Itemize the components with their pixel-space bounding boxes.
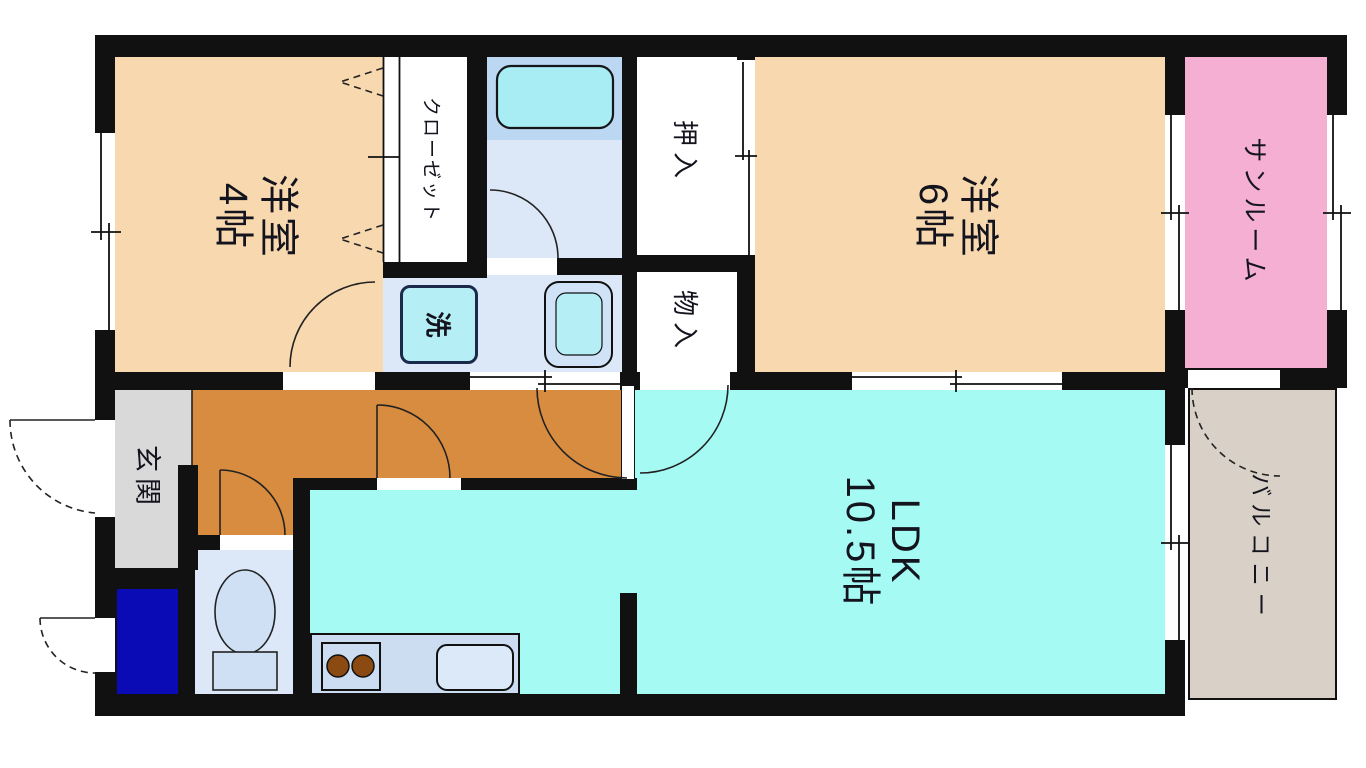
label-balcony: バルコニー xyxy=(1243,438,1283,658)
window-symbol-ldk-balcony xyxy=(1161,445,1189,640)
sliding-symbol-washroom xyxy=(470,370,620,392)
stove-burner-left xyxy=(327,655,349,677)
vanity-sink-basin xyxy=(556,293,602,355)
kitchen-sink xyxy=(437,645,513,690)
label-monoire: 物入 xyxy=(667,212,707,432)
toilet-bowl xyxy=(215,570,275,654)
label-genkan: 玄関 xyxy=(130,408,170,548)
sliding-symbol-oshiire xyxy=(735,62,757,255)
window-symbol-sunroom-left xyxy=(1161,115,1189,310)
door-arc-storage xyxy=(40,618,95,673)
door-arc-hall-ldk xyxy=(537,388,627,478)
door-arc-entrance xyxy=(10,420,95,513)
door-arc-bathroom xyxy=(490,190,558,258)
label-sunroom: サンルーム xyxy=(1236,102,1276,322)
closet-fold-chevron-top xyxy=(340,68,383,96)
door-arc-toilet xyxy=(220,470,285,535)
label-ldk: LDK10.5帖 xyxy=(822,427,942,657)
floor-plan: 洗 xyxy=(0,0,1366,768)
closet-door-lines xyxy=(368,57,400,262)
window-symbol-western4 xyxy=(91,133,121,330)
closet-fold-chevron-bottom xyxy=(340,225,383,253)
label-western6: 洋室6帖 xyxy=(895,102,1015,332)
door-arc-kitchen xyxy=(377,405,450,478)
window-symbol-sunroom-right xyxy=(1323,115,1351,310)
sliding-symbol-western6 xyxy=(852,370,1062,392)
stove-burner-right xyxy=(352,655,374,677)
label-western4: 洋室4帖 xyxy=(195,102,315,332)
label-closet: クローゼット xyxy=(413,60,453,260)
bathtub xyxy=(497,66,613,128)
toilet-tank xyxy=(213,652,277,690)
